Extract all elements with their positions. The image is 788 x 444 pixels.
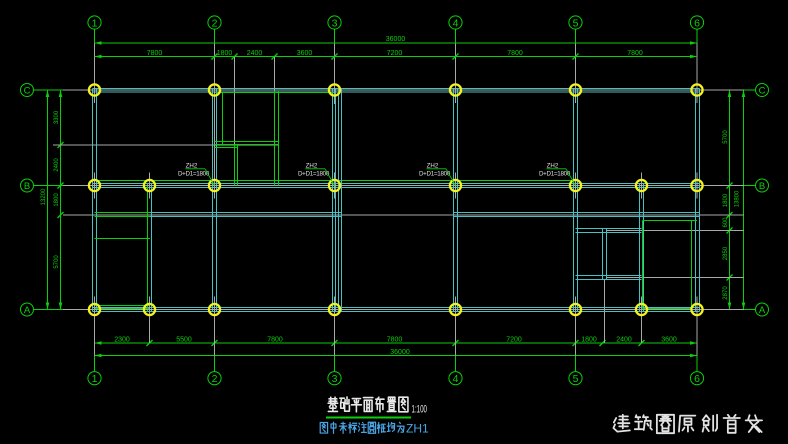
svg-text:6: 6 — [694, 17, 700, 29]
svg-text:D+D1=1800: D+D1=1800 — [539, 171, 571, 178]
svg-text:2400: 2400 — [54, 158, 60, 172]
svg-text:3600: 3600 — [297, 50, 313, 57]
svg-text:2400: 2400 — [616, 337, 632, 344]
svg-text:7200: 7200 — [387, 50, 403, 57]
svg-text:36000: 36000 — [390, 349, 410, 356]
svg-text:7800: 7800 — [147, 50, 163, 57]
svg-text:7800: 7800 — [267, 337, 283, 344]
svg-text:2870: 2870 — [723, 286, 729, 300]
svg-text:13200: 13200 — [41, 188, 47, 205]
svg-text:3600: 3600 — [661, 337, 677, 344]
svg-text:B: B — [24, 181, 30, 192]
svg-text:A: A — [759, 305, 766, 316]
svg-text:A: A — [24, 305, 31, 316]
svg-text:3: 3 — [332, 373, 338, 385]
svg-text:2: 2 — [212, 373, 218, 385]
svg-text:2850: 2850 — [723, 246, 729, 260]
svg-text:5500: 5500 — [176, 337, 192, 344]
svg-text:3300: 3300 — [54, 110, 60, 124]
svg-text:7800: 7800 — [507, 50, 523, 57]
svg-text:1800: 1800 — [723, 193, 729, 207]
svg-text:7200: 7200 — [506, 337, 522, 344]
svg-text:7800: 7800 — [387, 337, 403, 344]
svg-text:2: 2 — [212, 17, 218, 29]
svg-text:5: 5 — [573, 373, 579, 385]
svg-text:C: C — [24, 85, 31, 96]
svg-text:1:100: 1:100 — [412, 404, 428, 416]
svg-text:B: B — [759, 181, 765, 192]
svg-text:36000: 36000 — [386, 36, 406, 43]
svg-text:4: 4 — [453, 373, 459, 385]
svg-text:1800: 1800 — [217, 50, 233, 57]
svg-text:1: 1 — [92, 17, 98, 29]
svg-text:5700: 5700 — [54, 255, 60, 269]
svg-text:C: C — [759, 85, 766, 96]
svg-text:2300: 2300 — [114, 337, 130, 344]
svg-text:D+D1=1800: D+D1=1800 — [419, 171, 451, 178]
svg-text:6: 6 — [694, 373, 700, 385]
svg-text:1: 1 — [92, 373, 98, 385]
svg-text:3: 3 — [332, 17, 338, 29]
svg-text:D+D1=1800: D+D1=1800 — [298, 171, 330, 178]
svg-text:1800: 1800 — [581, 337, 597, 344]
svg-text:5: 5 — [573, 17, 579, 29]
svg-text:2400: 2400 — [247, 50, 263, 57]
svg-text:ZH1: ZH1 — [406, 422, 429, 436]
svg-text:1800: 1800 — [54, 193, 60, 207]
svg-text:7800: 7800 — [627, 50, 643, 57]
svg-text:D+D1=1800: D+D1=1800 — [178, 171, 210, 178]
svg-text:5700: 5700 — [723, 130, 729, 144]
svg-text:600: 600 — [723, 217, 729, 228]
svg-text:4: 4 — [453, 17, 459, 29]
svg-text:13800: 13800 — [735, 190, 741, 207]
